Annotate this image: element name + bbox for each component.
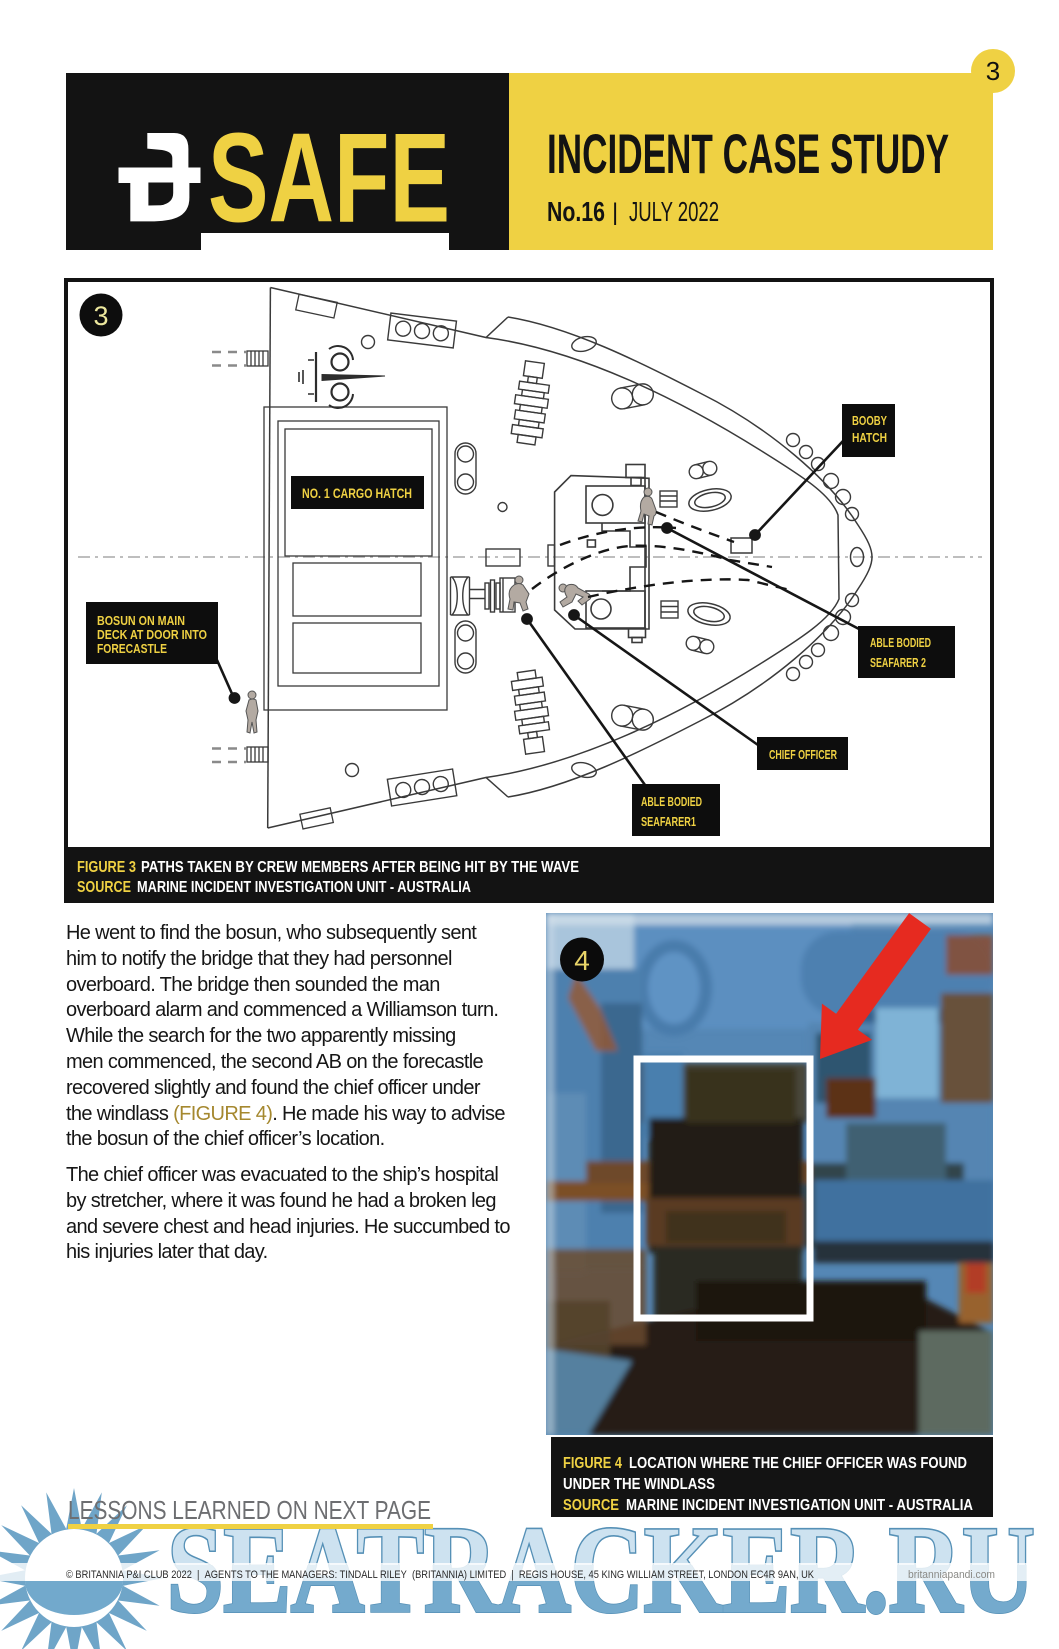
- svg-text:britanniapandi.com: britanniapandi.com: [908, 1569, 995, 1581]
- svg-text:LESSONS LEARNED ON NEXT PAGE: LESSONS LEARNED ON NEXT PAGE: [68, 1495, 431, 1525]
- svg-text:© BRITANNIA P&I CLUB 2022 |: © BRITANNIA P&I CLUB 2022 | AGENTS TO TH…: [66, 1569, 815, 1581]
